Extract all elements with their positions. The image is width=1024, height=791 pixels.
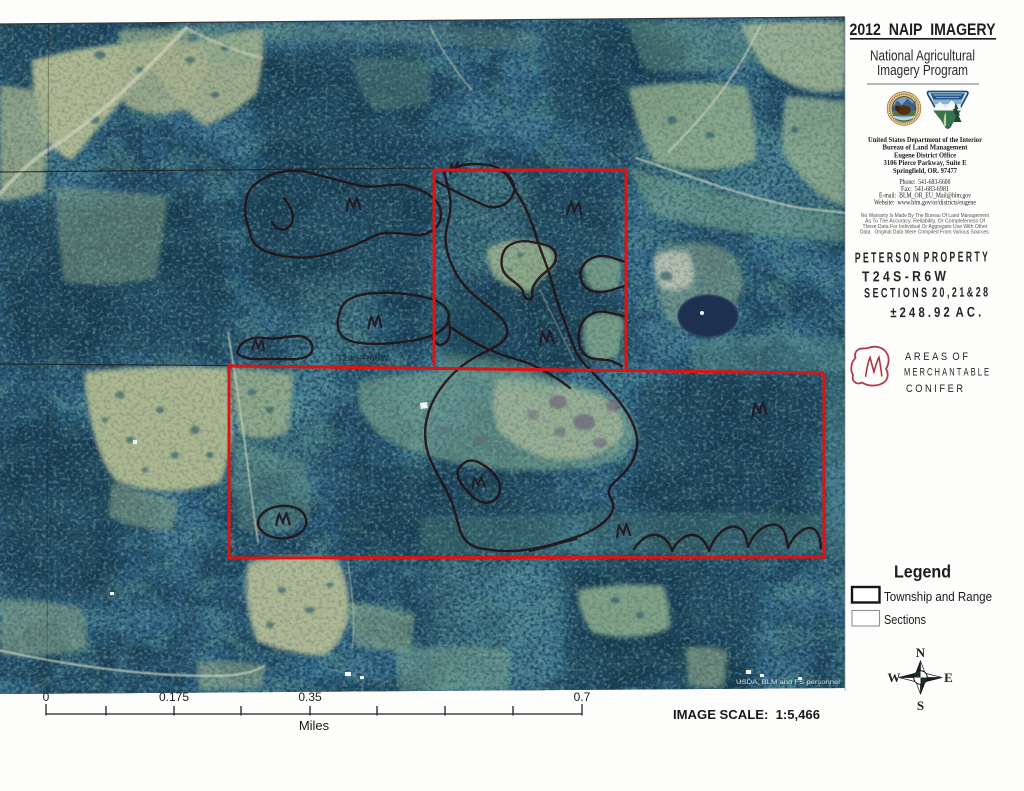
svg-text:C O N I F E R: C O N I F E R: [906, 383, 963, 395]
svg-text:0: 0: [43, 690, 50, 704]
svg-text:2012 NAIP IMAGERY: 2012 NAIP IMAGERY: [850, 21, 996, 39]
svg-text:S: S: [917, 698, 924, 713]
svg-text:Township and Range: Township and Range: [884, 590, 992, 604]
svg-text:M E R C H A N T A B L E: M E R C H A N T A B L E: [904, 367, 989, 379]
svg-text:E: E: [944, 670, 953, 685]
svg-text:P E T E R S O N P R O P E R T: P E T E R S O N P R O P E R T Y: [855, 249, 988, 266]
svg-text:A R E A S O F: A R E A S O F: [905, 351, 968, 363]
svg-text:Legend: Legend: [894, 562, 951, 582]
svg-text:Data. Original Data Were Comp: Data. Original Data Were Compiled From V…: [860, 230, 990, 236]
svg-text:IMAGE SCALE: 1:5,466: IMAGE SCALE: 1:5,466: [673, 707, 820, 722]
svg-text:W: W: [888, 670, 901, 685]
svg-text:0.7: 0.7: [574, 690, 591, 704]
svg-text:0.175: 0.175: [159, 690, 189, 704]
svg-text:T 2 4 S - R 6 W: T 2 4 S - R 6 W: [862, 269, 946, 286]
svg-text:0.35: 0.35: [298, 690, 322, 704]
svg-text:S E C T I O N S 2 0 , 2 1 & 2: S E C T I O N S 2 0 , 2 1 & 2 8: [864, 284, 988, 300]
svg-text:Imagery Program: Imagery Program: [877, 63, 968, 79]
svg-text:N: N: [916, 645, 926, 660]
svg-text:T24S-R08W: T24S-R08W: [337, 354, 390, 363]
svg-text:Springfield, OR. 97477: Springfield, OR. 97477: [893, 166, 957, 175]
svg-text:Miles: Miles: [299, 718, 330, 733]
svg-text:Website: www.blm.gov/or/distr: Website: www.blm.gov/or/districts/eugene: [874, 198, 976, 206]
svg-text:Sections: Sections: [884, 613, 926, 627]
svg-text:USDA, BLM and FS personnel: USDA, BLM and FS personnel: [736, 679, 841, 686]
svg-text:± 2 4 8 . 9 2 A C .: ± 2 4 8 . 9 2 A C .: [890, 303, 981, 320]
